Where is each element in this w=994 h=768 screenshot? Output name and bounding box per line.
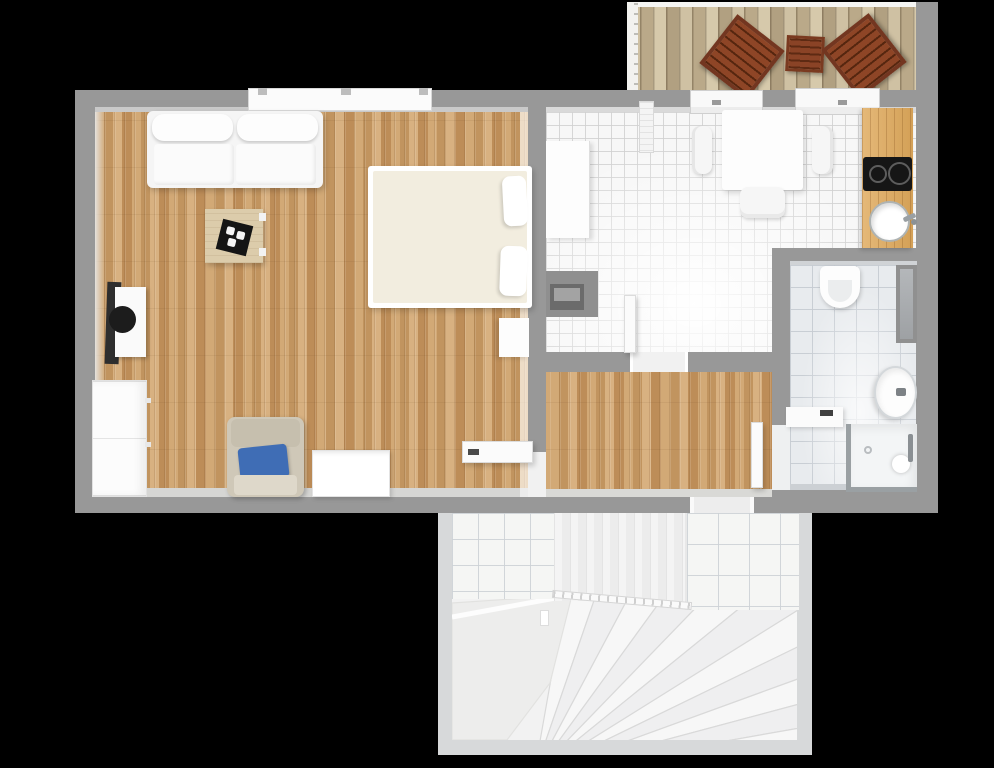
dining-chair-right xyxy=(812,126,833,174)
shower-handle-bar xyxy=(908,434,913,462)
kitchen-wall-niche-shelf xyxy=(554,288,580,301)
toilet xyxy=(820,266,860,308)
floor-plan xyxy=(0,0,994,768)
sofa xyxy=(147,111,323,188)
coffee-table-foot xyxy=(259,213,266,221)
tray-cup xyxy=(227,238,237,248)
wall-face xyxy=(546,489,772,497)
coffee-table-foot xyxy=(259,248,266,256)
door-gap-hallway-bathroom xyxy=(772,425,790,490)
tray-cup xyxy=(236,231,246,241)
bed-pillow-bottom xyxy=(499,246,528,297)
hallway-floor xyxy=(546,372,772,497)
sofa-seat-right xyxy=(236,144,316,185)
sofa-cushion-back-left xyxy=(152,114,233,141)
burner xyxy=(888,162,911,185)
shower-enclosure xyxy=(846,424,917,492)
stairwell-tiled-wall-right xyxy=(685,513,799,610)
burner xyxy=(869,165,887,183)
stairwell xyxy=(438,505,812,755)
sofa-seat-left xyxy=(154,144,234,185)
balcony-railing-top xyxy=(627,2,916,7)
wall-shelf xyxy=(499,318,529,357)
shower-knob xyxy=(864,446,872,454)
stairwell-upper-flight xyxy=(554,513,685,601)
stairwell-interior xyxy=(452,513,797,740)
bed-pillow-top xyxy=(502,175,529,226)
cabinet-hinge xyxy=(145,398,151,403)
radiator xyxy=(639,101,654,153)
speaker-cone xyxy=(109,306,136,333)
window-mullion xyxy=(258,88,267,95)
armchair xyxy=(227,417,304,497)
kitchen-sideboard xyxy=(546,141,590,238)
sink-faucet-knob xyxy=(911,219,917,225)
balcony-railing-left xyxy=(627,2,638,95)
balcony-door-right-handle xyxy=(838,100,847,105)
cabinet-hinge xyxy=(145,442,151,447)
storage-chest xyxy=(312,450,390,497)
sofa-cushion-back-right xyxy=(237,114,318,141)
dining-table xyxy=(722,110,803,190)
dining-chair-bottom xyxy=(740,187,785,218)
window-mullion xyxy=(419,88,428,95)
living-window xyxy=(248,88,432,111)
bed xyxy=(368,166,532,308)
tall-cabinet xyxy=(92,380,147,497)
door-gap-hallway-stairs xyxy=(690,497,754,513)
armchair-back xyxy=(231,419,300,447)
deck-side-table xyxy=(785,35,825,73)
stairwell-tiled-wall-left xyxy=(452,513,556,599)
door-leaf-kitchen xyxy=(624,295,636,353)
cooktop xyxy=(863,157,912,191)
bathroom-bench-shelf xyxy=(786,407,843,427)
dining-chair-left xyxy=(692,126,712,174)
door-leaf-bathroom xyxy=(751,422,763,488)
door-handle xyxy=(468,449,479,455)
stairs-newel-post xyxy=(540,610,549,626)
armchair-seat-front xyxy=(234,475,297,495)
bench-handle xyxy=(820,410,833,416)
toilet-seat xyxy=(828,280,852,302)
tray-cup xyxy=(226,226,236,236)
door-gap-kitchen-hallway xyxy=(630,352,688,372)
window-mullion xyxy=(341,88,351,95)
basin-faucet xyxy=(896,388,906,396)
bathroom-duct-inner xyxy=(900,269,913,339)
balcony-door-left-handle xyxy=(712,100,721,105)
